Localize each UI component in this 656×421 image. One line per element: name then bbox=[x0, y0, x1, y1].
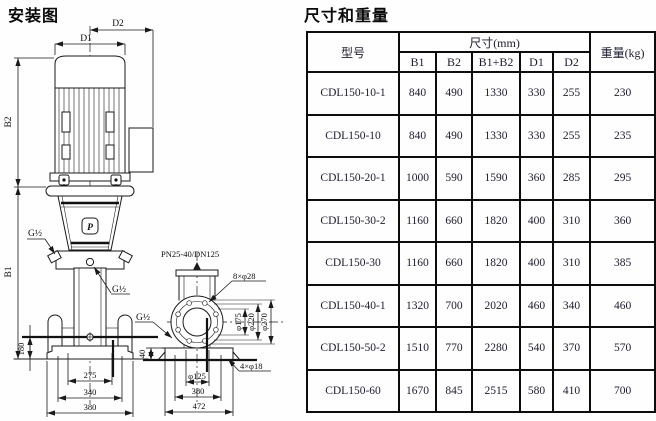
value-cell: 310 bbox=[553, 242, 590, 285]
value-cell: 1330 bbox=[472, 72, 520, 115]
motor bbox=[50, 56, 153, 198]
value-cell: 2280 bbox=[472, 327, 520, 370]
coupling-plate bbox=[46, 186, 134, 196]
value-cell: 490 bbox=[436, 72, 472, 115]
value-cell: 660 bbox=[436, 242, 472, 285]
value-cell: 1820 bbox=[472, 200, 520, 243]
dim-label-380-front: 380 bbox=[84, 402, 97, 412]
value-cell: 460 bbox=[520, 285, 553, 328]
value-cell: 460 bbox=[590, 285, 655, 328]
model-column-header: 型号 bbox=[307, 32, 399, 72]
table-row: CDL150-20-110005901590360285295 bbox=[307, 157, 655, 200]
model-cell: CDL150-60 bbox=[307, 370, 399, 413]
value-cell: 400 bbox=[520, 242, 553, 285]
dims-group-header: 尺寸(mm) bbox=[399, 32, 590, 52]
pump-front-view: P bbox=[4, 19, 158, 417]
value-cell: 410 bbox=[553, 370, 590, 413]
brand-logo: P bbox=[82, 218, 98, 234]
dim-label-phi270: φ270 bbox=[259, 313, 269, 331]
value-cell: 590 bbox=[436, 157, 472, 200]
bolt-spec-8x28-label: 8×φ28 bbox=[233, 271, 255, 281]
dim-label-380-side: 380 bbox=[192, 386, 205, 396]
value-cell: 1670 bbox=[399, 370, 436, 413]
value-cell: 1820 bbox=[472, 242, 520, 285]
value-cell: 330 bbox=[520, 115, 553, 158]
table-row: CDL150-6016708452515580410700 bbox=[307, 370, 655, 413]
value-cell: 310 bbox=[553, 200, 590, 243]
pump-base bbox=[47, 346, 133, 359]
terminal-box bbox=[129, 128, 153, 172]
value-cell: 255 bbox=[553, 115, 590, 158]
value-cell: 540 bbox=[520, 327, 553, 370]
value-cell: 2020 bbox=[472, 285, 520, 328]
dim-label-472: 472 bbox=[193, 401, 206, 411]
model-cell: CDL150-40-1 bbox=[307, 285, 399, 328]
value-cell: 490 bbox=[436, 115, 472, 158]
table-row: CDL150-10-18404901330330255230 bbox=[307, 72, 655, 115]
model-cell: CDL150-20-1 bbox=[307, 157, 399, 200]
model-cell: CDL150-10 bbox=[307, 115, 399, 158]
model-cell: CDL150-10-1 bbox=[307, 72, 399, 115]
dim-label-b2: B2 bbox=[4, 116, 14, 127]
value-cell: 840 bbox=[399, 72, 436, 115]
value-cell: 360 bbox=[590, 200, 655, 243]
dim-label-phi220: φ220 bbox=[246, 313, 256, 331]
port-label-g-half-left: G½ bbox=[28, 228, 42, 239]
dim-label-275: 275 bbox=[84, 370, 97, 380]
value-cell: 330 bbox=[520, 72, 553, 115]
value-cell: 1000 bbox=[399, 157, 436, 200]
value-cell: 400 bbox=[520, 200, 553, 243]
value-cell: 1510 bbox=[399, 327, 436, 370]
dim-label-40: 40 bbox=[137, 350, 147, 359]
value-cell: 1160 bbox=[399, 242, 436, 285]
value-cell: 660 bbox=[436, 200, 472, 243]
value-cell: 340 bbox=[553, 285, 590, 328]
port-label-g-half-right: G½ bbox=[112, 284, 126, 295]
value-cell: 230 bbox=[590, 72, 655, 115]
dimensions-weight-table: 型号 尺寸(mm) 重量(kg) B1 B2 B1+B2 D1 D2 CDL15… bbox=[306, 31, 656, 413]
flange-spec-label: PN25-40/DN125 bbox=[161, 249, 219, 259]
model-cell: CDL150-30-2 bbox=[307, 200, 399, 243]
dim-label-340-front: 340 bbox=[84, 387, 97, 397]
value-cell: 285 bbox=[553, 157, 590, 200]
model-cell: CDL150-30 bbox=[307, 242, 399, 285]
col-header-b2: B2 bbox=[436, 52, 472, 72]
value-cell: 1160 bbox=[399, 200, 436, 243]
col-header-b1: B1 bbox=[399, 52, 436, 72]
table-row: CDL150-40-113207002020460340460 bbox=[307, 285, 655, 328]
port-label-g-half-side: G½ bbox=[136, 312, 150, 323]
value-cell: 370 bbox=[553, 327, 590, 370]
col-header-d2: D2 bbox=[553, 52, 590, 72]
dim-label-phi125: φ125 bbox=[188, 371, 206, 381]
value-cell: 255 bbox=[553, 72, 590, 115]
col-header-b1b2: B1+B2 bbox=[472, 52, 520, 72]
dim-label-d2: D2 bbox=[112, 19, 124, 29]
pump-body: P bbox=[14, 186, 158, 377]
value-cell: 1330 bbox=[472, 115, 520, 158]
brand-logo-glyph: P bbox=[87, 223, 93, 233]
table-header-row-1: 型号 尺寸(mm) 重量(kg) bbox=[307, 32, 655, 52]
center-port bbox=[86, 258, 93, 265]
value-cell: 385 bbox=[590, 242, 655, 285]
table-row: CDL150-50-215107702280540370570 bbox=[307, 327, 655, 370]
weight-column-header: 重量(kg) bbox=[590, 32, 655, 72]
value-cell: 1590 bbox=[472, 157, 520, 200]
value-cell: 770 bbox=[436, 327, 472, 370]
value-cell: 580 bbox=[520, 370, 553, 413]
dim-label-b1: B1 bbox=[4, 266, 14, 277]
pump-side-view: PN25-40/DN125 8×φ28 G½ 40 φ175 φ220 bbox=[135, 249, 283, 416]
value-cell: 235 bbox=[590, 115, 655, 158]
table-row: CDL150-108404901330330255235 bbox=[307, 115, 655, 158]
dim-label-phi175: φ175 bbox=[233, 313, 243, 331]
dimensions-weight-title: 尺寸和重量 bbox=[304, 2, 389, 26]
catalog-page: 安装图 尺寸和重量 bbox=[0, 0, 656, 421]
dim-label-d1: D1 bbox=[80, 34, 92, 44]
col-header-d1: D1 bbox=[520, 52, 553, 72]
value-cell: 360 bbox=[520, 157, 553, 200]
bolt-spec-4x18-label: 4×φ18 bbox=[240, 361, 262, 371]
flange-port-arrow bbox=[193, 262, 201, 270]
value-cell: 2515 bbox=[472, 370, 520, 413]
value-cell: 700 bbox=[436, 285, 472, 328]
table-row: CDL150-3011606601820400310385 bbox=[307, 242, 655, 285]
value-cell: 295 bbox=[590, 157, 655, 200]
dim-label-180: 180 bbox=[16, 343, 26, 356]
value-cell: 1320 bbox=[399, 285, 436, 328]
value-cell: 840 bbox=[399, 115, 436, 158]
model-cell: CDL150-50-2 bbox=[307, 327, 399, 370]
table-row: CDL150-30-211606601820400310360 bbox=[307, 200, 655, 243]
pump-installation-drawing: P bbox=[0, 0, 300, 421]
value-cell: 845 bbox=[436, 370, 472, 413]
value-cell: 700 bbox=[590, 370, 655, 413]
value-cell: 570 bbox=[590, 327, 655, 370]
